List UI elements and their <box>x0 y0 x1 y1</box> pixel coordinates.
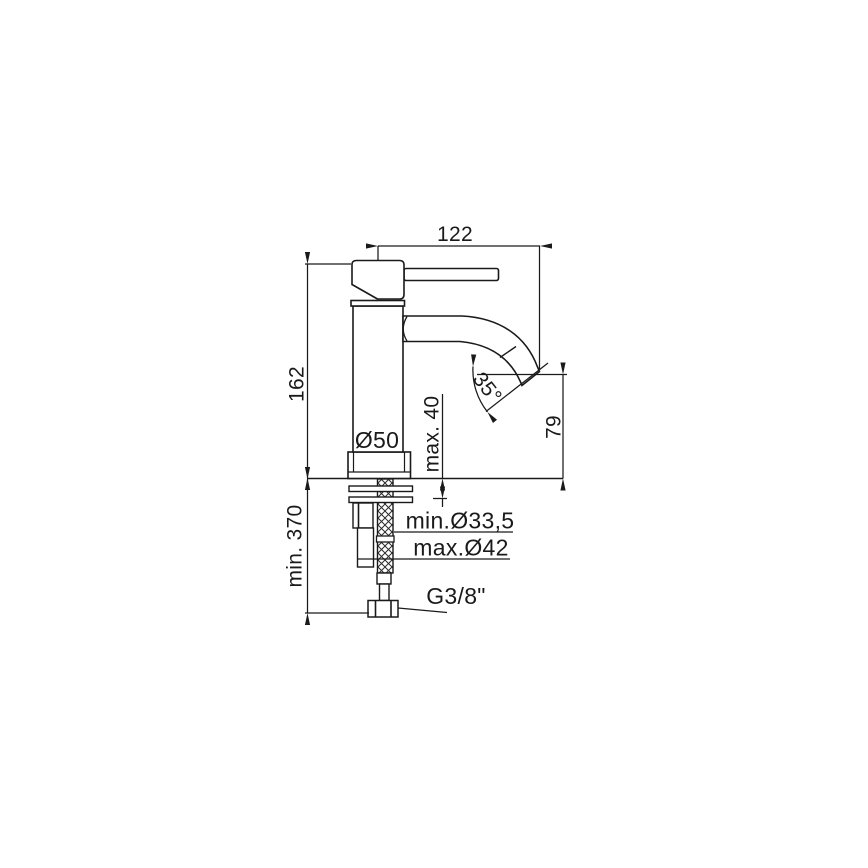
dim-spout-reach-label: 122 <box>437 223 473 246</box>
dim-height <box>305 264 351 478</box>
mounting-stud <box>353 503 374 567</box>
dim-min-clearance-label: min. 370 <box>284 505 307 588</box>
faucet-dimension-drawing: 122 162 min. 370 max. 40 79 35° Ø50 min.… <box>0 0 868 868</box>
supply-thread-label: G3/8" <box>426 583 486 609</box>
base-diameter-label: Ø50 <box>355 427 399 453</box>
min-hole-label: min.Ø33,5 <box>406 508 515 534</box>
base-collar <box>348 452 411 479</box>
hose-collar <box>377 573 391 584</box>
dim-height-label: 162 <box>286 366 309 402</box>
clamp-flange-bottom <box>349 497 413 503</box>
technical-drawing-page: 122 162 min. 370 max. 40 79 35° Ø50 min.… <box>0 0 868 868</box>
clamp-flange-top <box>349 486 413 492</box>
dim-max-deck-thickness-label: max. 40 <box>421 396 444 473</box>
hose-nut <box>368 601 398 618</box>
cartridge-ring <box>351 301 405 307</box>
handle-cap <box>352 261 404 300</box>
supply-hose <box>380 584 390 601</box>
max-hole-label: max.Ø42 <box>413 535 508 561</box>
dim-outlet-height-label: 79 <box>543 415 566 439</box>
shank-nut-band <box>377 536 395 542</box>
handle-lever <box>404 269 499 281</box>
